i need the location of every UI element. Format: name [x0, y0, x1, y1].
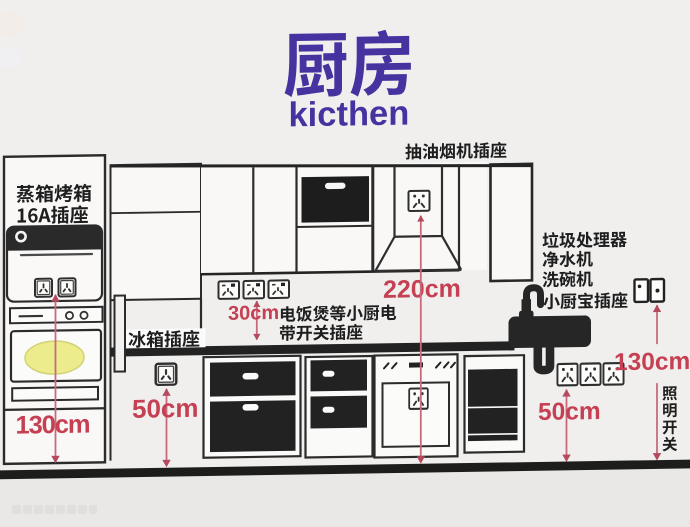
svg-text:220cm: 220cm	[383, 275, 461, 304]
svg-text:30cm: 30cm	[228, 302, 279, 325]
svg-text:130cm: 130cm	[614, 348, 690, 376]
svg-text:50cm: 50cm	[538, 398, 601, 426]
svg-text:130cm: 130cm	[16, 411, 90, 440]
svg-text:50cm: 50cm	[132, 393, 198, 424]
svg-text:kicthen: kicthen	[289, 94, 410, 134]
